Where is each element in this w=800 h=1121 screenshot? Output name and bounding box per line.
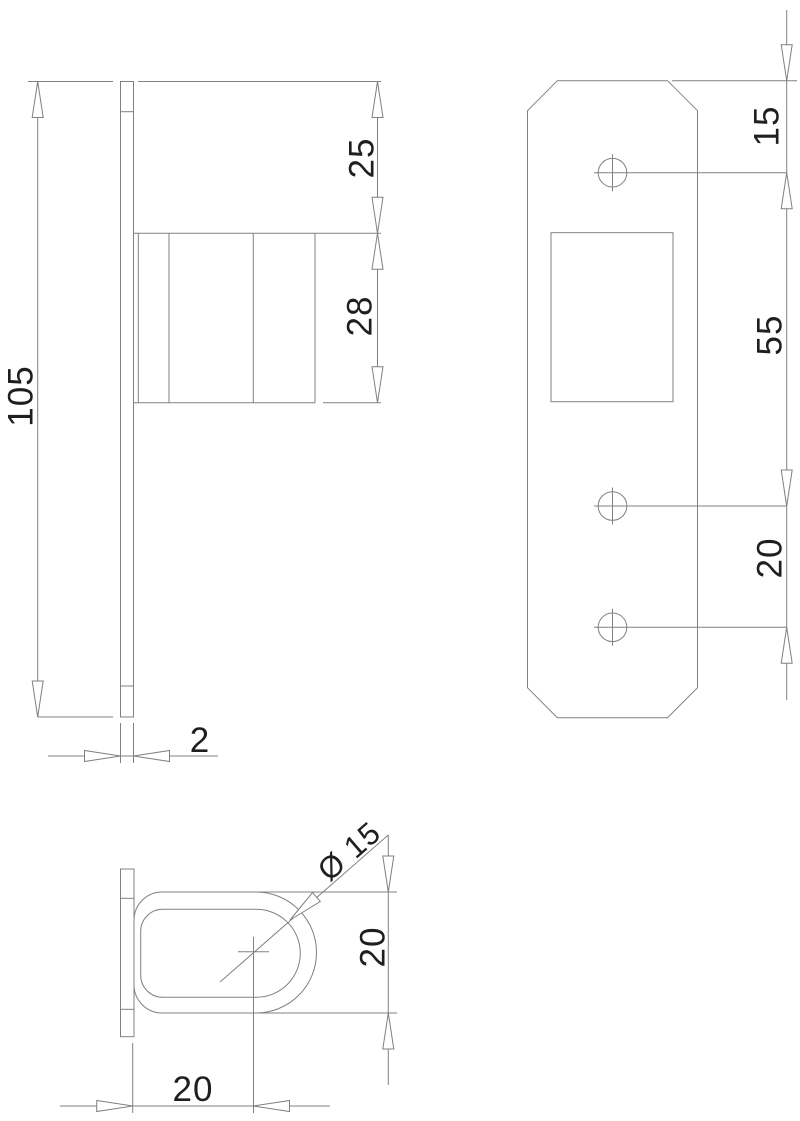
- arrow-left-2: [134, 751, 170, 762]
- dim-label-tube-height: 20: [353, 927, 392, 968]
- arrow-up-105: [32, 82, 43, 118]
- arrow-down-105: [32, 681, 43, 717]
- arrow-down-28: [372, 367, 383, 403]
- arrow-up-tube-height: [383, 1013, 394, 1049]
- arrow-down-55-20: [781, 470, 792, 506]
- dim-label-plate-thickness: 2: [190, 721, 210, 760]
- dim-label-plate-height: 105: [1, 365, 40, 426]
- dim-hole-positions: 15 55 20: [672, 10, 797, 700]
- dim-plate-thickness: 2: [48, 721, 218, 763]
- dim-label-tube-center-offset: 20: [173, 1070, 214, 1109]
- dim-label-hole-top-offset: 15: [747, 106, 786, 147]
- arrow-right-center-offset: [97, 1101, 133, 1112]
- hole-top: [594, 154, 787, 191]
- dim-label-bore-diameter: Ø 15: [311, 815, 388, 888]
- hole-bottom: [594, 609, 787, 646]
- dim-handle-offsets: 25 28: [340, 82, 383, 403]
- arrow-down-25: [372, 197, 383, 233]
- top-view: Ø 15 20 20: [60, 815, 397, 1113]
- front-view: 15 55 20: [528, 10, 798, 718]
- arrow-up-25: [372, 82, 383, 118]
- dim-label-top-offset: 25: [342, 138, 381, 179]
- arrow-down-tube-height: [383, 856, 394, 892]
- technical-drawing-page: 105 25 28 2: [0, 0, 800, 1121]
- dim-tube-center-offset: 20: [60, 1043, 330, 1113]
- arrow-down-15: [781, 45, 792, 81]
- tube-inner-contour: [141, 909, 301, 997]
- drawing-canvas: 105 25 28 2: [0, 0, 800, 1121]
- top-plate-edge: [121, 869, 135, 1037]
- dim-label-handle-width: 28: [340, 296, 379, 337]
- arrow-right-2: [85, 751, 121, 762]
- arrow-up-15-55: [781, 173, 792, 209]
- tube-outer-contour: [134, 892, 317, 1013]
- arrow-up-20: [781, 627, 792, 663]
- arrow-left-center-offset: [254, 1101, 290, 1112]
- hole-middle: [594, 488, 787, 525]
- front-plate-cutout: [551, 233, 673, 402]
- dim-plate-height: 105: [1, 82, 113, 718]
- side-view: 105 25 28 2: [1, 82, 383, 764]
- side-plate-edge: [121, 82, 134, 718]
- arrow-up-28: [372, 233, 383, 269]
- dim-label-hole-pitch-lower: 20: [750, 538, 789, 579]
- dim-label-hole-pitch-upper: 55: [750, 315, 789, 356]
